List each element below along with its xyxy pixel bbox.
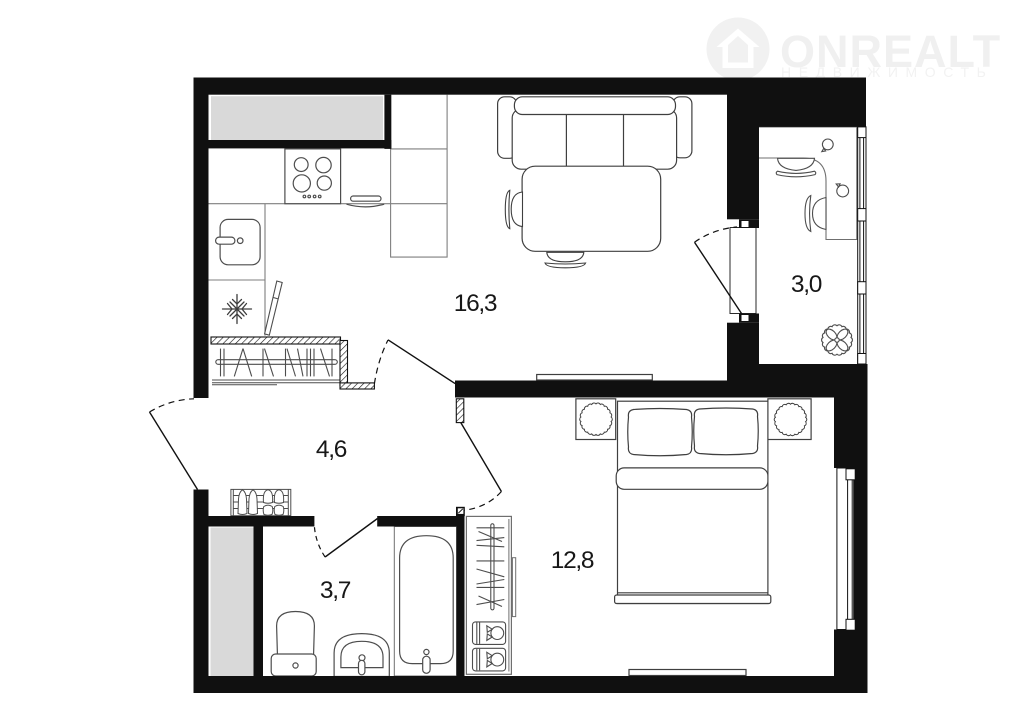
svg-text:4,6: 4,6 xyxy=(316,436,347,463)
svg-text:3,0: 3,0 xyxy=(791,271,822,298)
svg-text:12,8: 12,8 xyxy=(551,547,594,574)
svg-text:3,7: 3,7 xyxy=(320,577,351,604)
svg-text:16,3: 16,3 xyxy=(454,290,497,317)
